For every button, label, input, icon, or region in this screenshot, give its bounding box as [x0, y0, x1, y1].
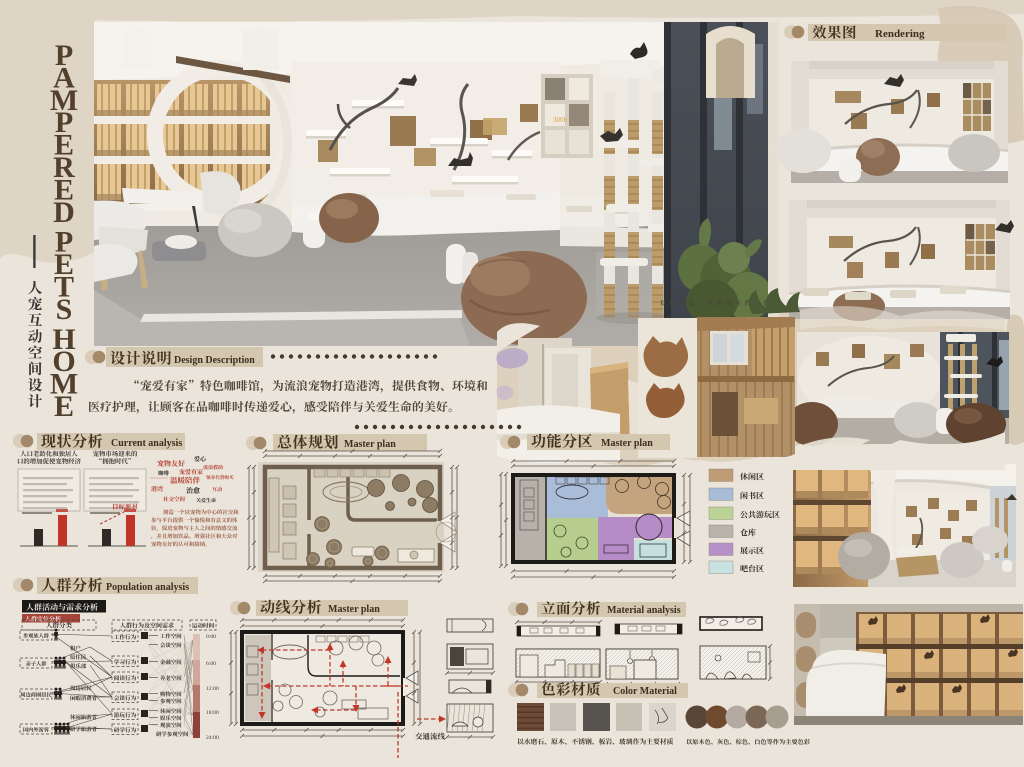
svg-text:6:00: 6:00	[206, 661, 216, 667]
svg-text:Master plan: Master plan	[344, 439, 396, 450]
svg-text:12:00: 12:00	[206, 686, 219, 692]
svg-text:24:00: 24:00	[206, 735, 219, 741]
svg-text:Material analysis: Material analysis	[607, 605, 681, 616]
svg-text:300b: 300b	[553, 116, 568, 124]
svg-text:Design Description: Design Description	[174, 355, 255, 366]
svg-text:0:00: 0:00	[206, 634, 216, 640]
svg-text:D: D	[53, 196, 75, 229]
svg-text:Master plan: Master plan	[328, 604, 380, 615]
svg-text:Population analysis: Population analysis	[106, 582, 189, 593]
svg-text:S: S	[56, 293, 73, 326]
svg-text:Rendering: Rendering	[875, 28, 925, 40]
svg-text:18:00: 18:00	[206, 710, 219, 716]
svg-text:Current analysis: Current analysis	[111, 438, 182, 449]
svg-text:Master plan: Master plan	[601, 438, 653, 449]
svg-text:E: E	[54, 390, 74, 423]
svg-text:Color Material: Color Material	[613, 686, 677, 697]
